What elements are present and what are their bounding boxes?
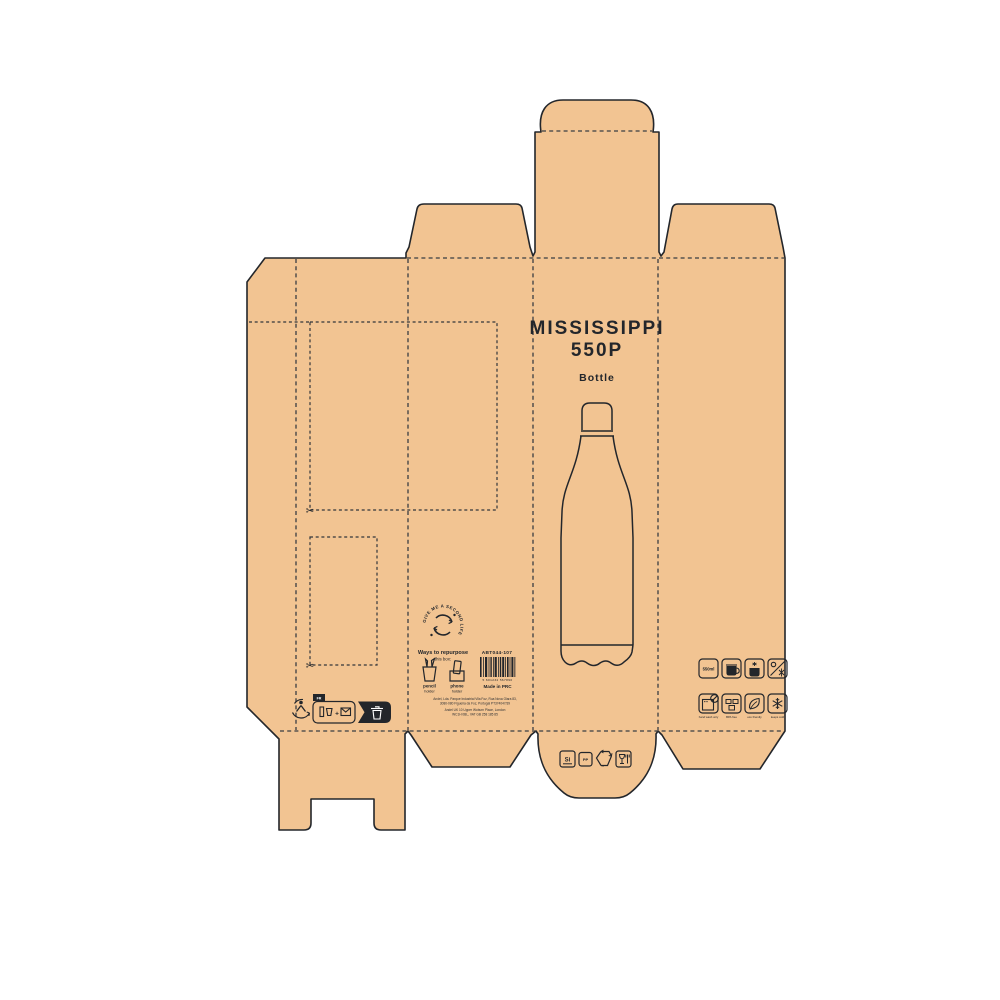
packaging-dieline-page: ✂ ✂ MISSISSIPPI 550P Bottle GIVE ME A SE… xyxy=(0,0,1000,1000)
product-subtitle: Bottle xyxy=(579,372,615,384)
bpa-free-label: BPA free xyxy=(726,715,737,719)
pencil-holder-label: pencil xyxy=(423,684,436,689)
product-title-line2: 550P xyxy=(571,340,623,361)
eco-label: eco friendly xyxy=(747,715,762,719)
phone-holder-sublabel: holder xyxy=(452,690,463,694)
capacity-label: 550ml xyxy=(703,667,715,672)
product-title-line1: MISSISSIPPI xyxy=(530,318,665,339)
repurpose-subheading: this box: xyxy=(435,657,451,662)
sku-code: ABT044-107 xyxy=(482,650,512,656)
made-in-label: Made in PRC xyxy=(483,684,512,689)
pp-label: PP xyxy=(583,757,589,762)
dieline-canvas: ✂ ✂ MISSISSIPPI 550P Bottle GIVE ME A SE… xyxy=(0,0,1000,1000)
phone-holder-label: phone xyxy=(450,684,464,689)
plus-sign: + xyxy=(335,711,339,718)
pencil-holder-sublabel: holder xyxy=(424,690,435,694)
company-line-3: Andel UK 10 Upper Woburn Place, London xyxy=(445,708,506,712)
barcode-digits: 5 601234 567890 xyxy=(482,678,512,682)
box-outline xyxy=(247,100,785,830)
company-line-4: WC1H 0BL, VAT GB 258 185 85 xyxy=(452,713,498,717)
keeps-cold-label: keeps cold xyxy=(771,715,785,719)
repurpose-heading: Ways to repurpose xyxy=(418,650,468,656)
company-line-1: Andel, Lda. Parque Industrial Vila Foz, … xyxy=(433,697,517,701)
silicone-label: Si xyxy=(565,758,571,764)
scissors-icon: ✂ xyxy=(306,661,314,672)
hand-wash-label: hand wash only xyxy=(699,715,719,719)
company-line-2: 3080-080 Figueira da Foz, Portugal PT374… xyxy=(440,702,510,706)
country-tab-label: FR xyxy=(317,696,322,700)
scissors-icon: ✂ xyxy=(306,506,314,517)
